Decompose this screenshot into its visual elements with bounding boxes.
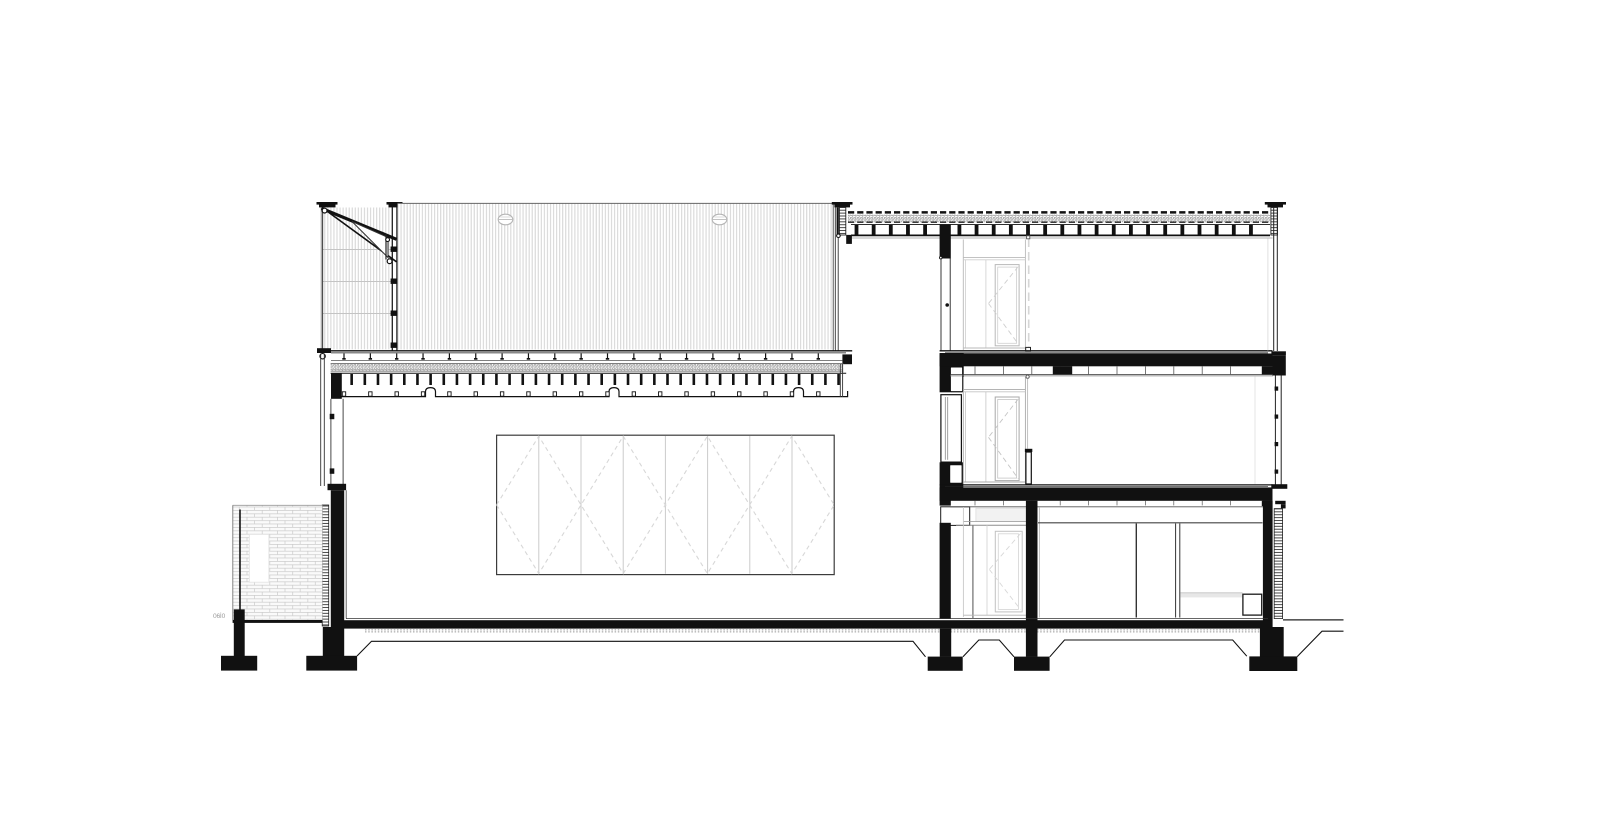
svg-text:06İ0: 06İ0 <box>213 611 226 620</box>
